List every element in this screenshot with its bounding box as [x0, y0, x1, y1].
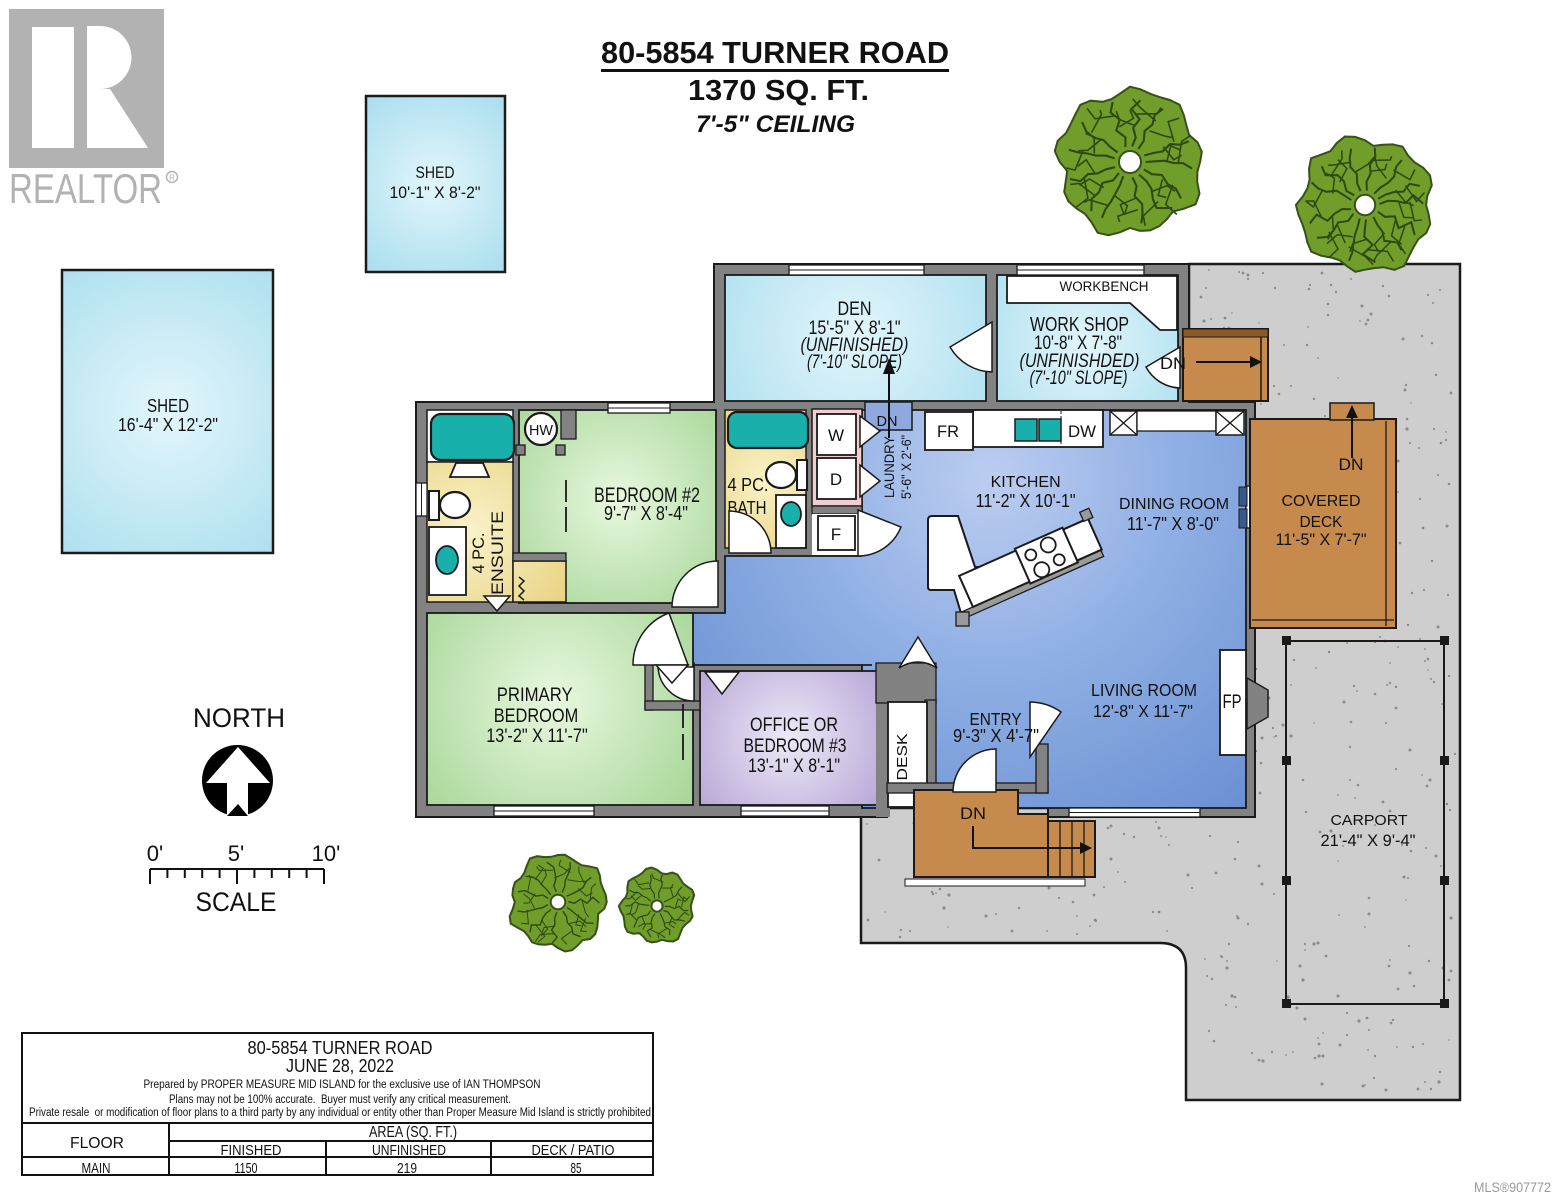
svg-text:NORTH: NORTH	[193, 703, 285, 733]
svg-text:9'-3" X 4'-7": 9'-3" X 4'-7"	[953, 726, 1039, 746]
svg-text:SHED: SHED	[416, 163, 455, 182]
svg-text:FR: FR	[937, 422, 959, 441]
svg-text:AREA (SQ. FT.): AREA (SQ. FT.)	[369, 1124, 457, 1141]
svg-text:JUNE 28, 2022: JUNE 28, 2022	[286, 1055, 394, 1076]
svg-text:R: R	[169, 174, 175, 183]
svg-text:PRIMARY: PRIMARY	[497, 685, 573, 706]
svg-text:1150: 1150	[235, 1161, 258, 1177]
svg-text:DN: DN	[1160, 354, 1186, 373]
svg-text:4 PC.: 4 PC.	[470, 533, 488, 574]
svg-text:13'-2" X 11'-7": 13'-2" X 11'-7"	[486, 726, 588, 747]
svg-text:0': 0'	[147, 841, 163, 866]
svg-text:SCALE: SCALE	[196, 887, 277, 917]
svg-text:F: F	[831, 525, 841, 544]
svg-text:DESK: DESK	[894, 734, 911, 781]
svg-text:7'-5" CEILING: 7'-5" CEILING	[696, 111, 855, 138]
svg-text:1370 SQ. FT.: 1370 SQ. FT.	[688, 75, 869, 107]
svg-text:DEN: DEN	[838, 299, 872, 320]
svg-text:FLOOR: FLOOR	[70, 1135, 124, 1152]
svg-text:FINISHED: FINISHED	[221, 1143, 282, 1159]
svg-text:DECK: DECK	[1300, 514, 1343, 531]
svg-text:DN: DN	[960, 804, 986, 823]
svg-text:CARPORT: CARPORT	[1331, 812, 1408, 829]
svg-text:OFFICE OR: OFFICE OR	[750, 715, 838, 736]
svg-text:ENSUITE: ENSUITE	[489, 511, 507, 595]
svg-text:LAUNDRY: LAUNDRY	[881, 435, 897, 498]
svg-text:(7'-10" SLOPE): (7'-10" SLOPE)	[807, 352, 902, 373]
svg-text:LIVING ROOM: LIVING ROOM	[1091, 680, 1197, 700]
svg-text:FP: FP	[1223, 692, 1242, 713]
svg-text:REALTOR: REALTOR	[9, 165, 162, 212]
svg-text:80-5854 TURNER ROAD: 80-5854 TURNER ROAD	[601, 35, 949, 70]
svg-text:DINING ROOM: DINING ROOM	[1119, 496, 1229, 513]
svg-text:W: W	[828, 426, 844, 445]
svg-text:85: 85	[571, 1161, 582, 1177]
svg-text:16'-4" X 12'-2": 16'-4" X 12'-2"	[118, 415, 218, 435]
svg-text:DECK / PATIO: DECK / PATIO	[532, 1143, 615, 1159]
svg-text:BEDROOM: BEDROOM	[494, 706, 579, 727]
svg-text:11'-7" X 8'-0": 11'-7" X 8'-0"	[1127, 514, 1219, 534]
svg-text:HW: HW	[529, 422, 554, 439]
svg-text:DN: DN	[1339, 456, 1364, 474]
svg-text:4 PC.: 4 PC.	[728, 475, 769, 495]
svg-text:WORKBENCH: WORKBENCH	[1060, 279, 1149, 294]
svg-text:BEDROOM #3: BEDROOM #3	[744, 736, 847, 757]
svg-text:11'-5" X 7'-7": 11'-5" X 7'-7"	[1276, 531, 1367, 549]
svg-text:11'-2" X 10'-1": 11'-2" X 10'-1"	[976, 491, 1076, 511]
svg-text:Private resale or modificatio: Private resale or modification of floor …	[29, 1107, 651, 1119]
svg-text:Plans may not be 100% accurate: Plans may not be 100% accurate. Buyer mu…	[169, 1094, 511, 1106]
svg-text:MAIN: MAIN	[82, 1161, 111, 1177]
svg-text:5'-6" X 2'-6": 5'-6" X 2'-6"	[898, 435, 914, 499]
svg-text:SHED: SHED	[147, 395, 189, 416]
svg-text:21'-4" X 9'-4": 21'-4" X 9'-4"	[1321, 832, 1416, 850]
svg-text:DN: DN	[877, 413, 898, 430]
svg-text:DW: DW	[1068, 422, 1096, 441]
svg-text:D: D	[830, 470, 842, 489]
svg-text:10'-1" X 8'-2": 10'-1" X 8'-2"	[390, 183, 481, 202]
svg-text:(7'-10" SLOPE): (7'-10" SLOPE)	[1030, 368, 1128, 389]
svg-text:10': 10'	[312, 841, 341, 866]
svg-text:UNFINISHED: UNFINISHED	[372, 1143, 446, 1159]
svg-text:13'-1" X 8'-1": 13'-1" X 8'-1"	[748, 756, 840, 777]
svg-text:KITCHEN: KITCHEN	[991, 474, 1061, 491]
svg-text:12'-8" X 11'-7": 12'-8" X 11'-7"	[1093, 701, 1193, 721]
svg-text:COVERED: COVERED	[1282, 493, 1361, 510]
svg-text:219: 219	[397, 1161, 417, 1177]
svg-text:Prepared by PROPER MEASURE MID: Prepared by PROPER MEASURE MID ISLAND fo…	[144, 1079, 541, 1091]
svg-text:9'-7" X 8'-4": 9'-7" X 8'-4"	[604, 503, 688, 525]
svg-text:5': 5'	[228, 841, 244, 866]
svg-text:MLS®907772: MLS®907772	[1474, 1180, 1551, 1195]
